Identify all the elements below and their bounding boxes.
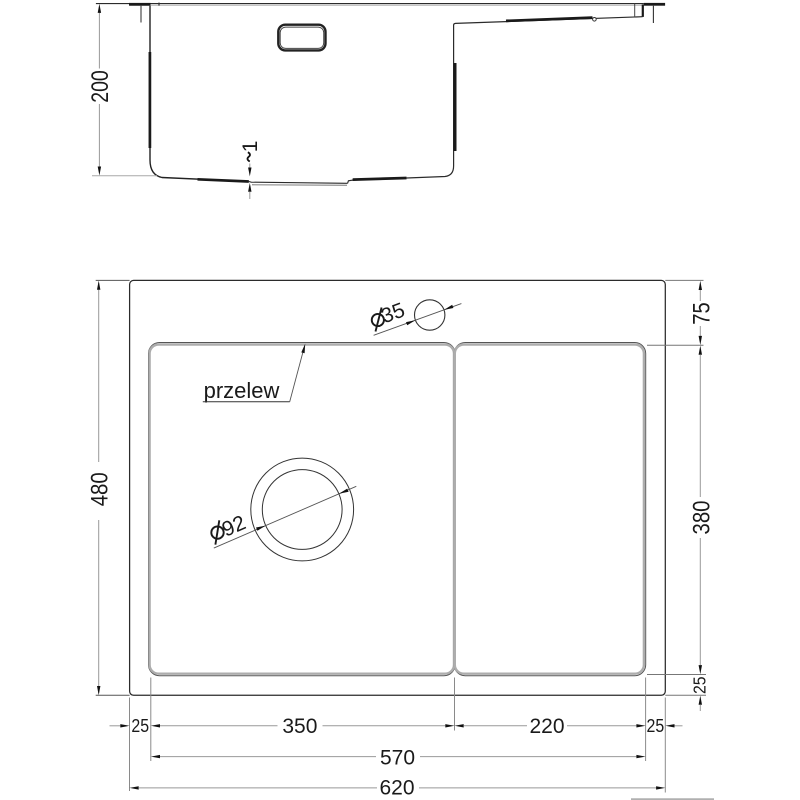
- svg-text:1: 1: [239, 141, 262, 153]
- svg-text:570: 570: [380, 746, 415, 769]
- svg-text:220: 220: [529, 715, 564, 738]
- svg-text:350: 350: [282, 715, 317, 738]
- svg-text:620: 620: [379, 776, 414, 799]
- svg-text:25: 25: [647, 716, 665, 736]
- svg-text:25: 25: [690, 676, 710, 694]
- svg-text:75: 75: [688, 302, 715, 325]
- svg-text:25: 25: [131, 716, 149, 736]
- svg-text:480: 480: [86, 472, 113, 506]
- svg-text:380: 380: [688, 501, 715, 535]
- svg-text:przelew: przelew: [204, 378, 280, 403]
- svg-text:200: 200: [87, 70, 114, 103]
